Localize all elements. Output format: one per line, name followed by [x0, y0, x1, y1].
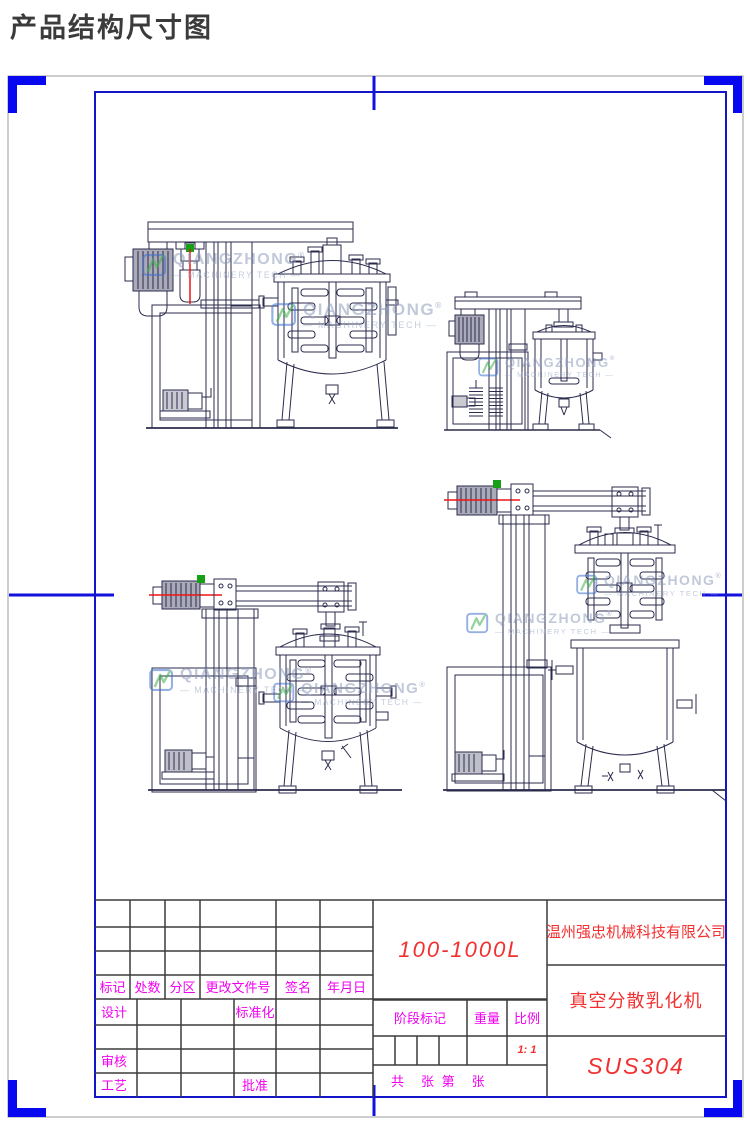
scale-value: 1: 1 [507, 1036, 547, 1065]
audit-label: 审核 [95, 1049, 137, 1073]
watermark: QIANGZHONG® — MACHINERY TECH — [273, 681, 426, 707]
weight-label: 重量 [467, 1000, 507, 1036]
standardize-label: 标准化 [234, 999, 276, 1025]
watermark: QIANGZHONG® — MACHINERY TECH — [576, 573, 722, 598]
watermark: QIANGZHONG® — MACHINERY TECH — [142, 252, 306, 280]
revision-header-zone: 分区 [165, 975, 200, 999]
green-indicator [197, 575, 205, 583]
revision-header-doc-no: 更改文件号 [200, 975, 276, 999]
revision-header-mark: 标记 [95, 975, 130, 999]
company-name: 温州强忠机械科技有限公司 [547, 900, 725, 965]
model-range-value: 100-1000L [373, 900, 547, 1000]
watermark: QIANGZHONG® — MACHINERY TECH — [466, 611, 613, 636]
qiangzhong-logo-icon [273, 681, 296, 704]
qiangzhong-logo-icon [478, 356, 500, 378]
revision-header-count: 处数 [130, 975, 165, 999]
revision-header-signature: 签名 [276, 975, 320, 999]
revision-header-date: 年月日 [320, 975, 373, 999]
process-label: 工艺 [95, 1073, 137, 1097]
green-indicator [493, 480, 501, 488]
stage-mark-label: 阶段标记 [373, 1000, 467, 1036]
approve-label: 批准 [234, 1073, 276, 1097]
material-value: SUS304 [547, 1036, 725, 1097]
page-title: 产品结构尺寸图 [10, 6, 213, 45]
watermark: QIANGZHONG® — MACHINERY TECH — [271, 301, 443, 330]
qiangzhong-logo-icon [149, 667, 175, 693]
product-name: 真空分散乳化机 [547, 965, 725, 1036]
qiangzhong-logo-icon [271, 301, 298, 328]
sheet-info: 共 张 第 张 [373, 1065, 547, 1097]
design-label: 设计 [95, 999, 137, 1025]
drawing-page: 产品结构尺寸图 [0, 0, 750, 1125]
watermark: QIANGZHONG® — MACHINERY TECH — [478, 356, 616, 379]
qiangzhong-logo-icon [142, 252, 168, 278]
qiangzhong-logo-icon [576, 573, 599, 596]
machine-view-lifted [443, 480, 726, 801]
scale-label: 比例 [507, 1000, 547, 1036]
qiangzhong-logo-icon [466, 611, 490, 635]
